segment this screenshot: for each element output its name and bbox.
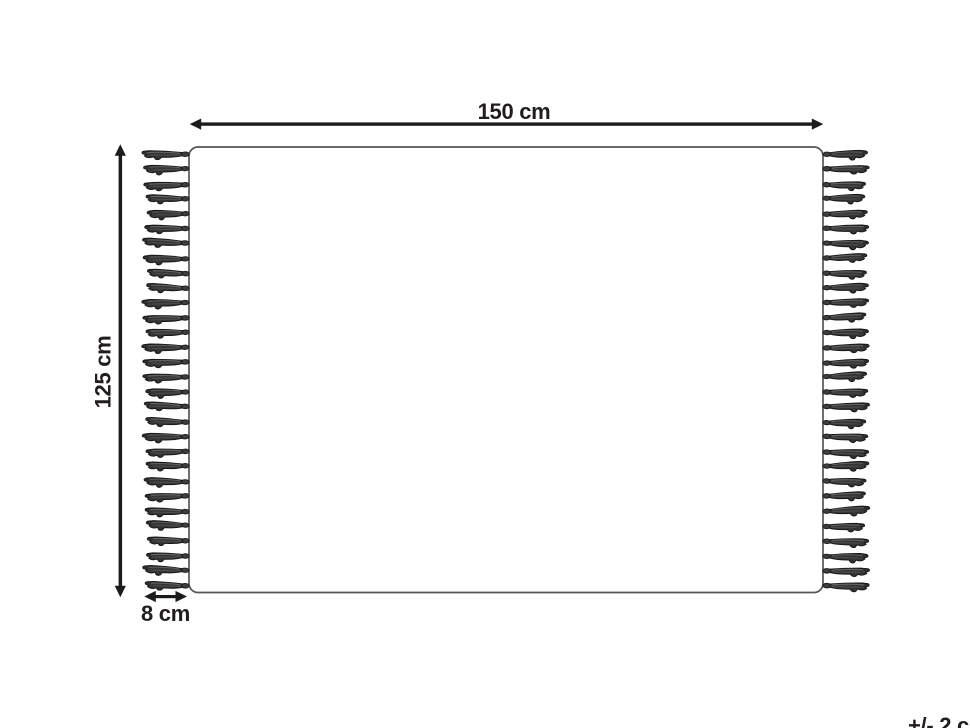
svg-text:8 cm: 8 cm <box>141 601 190 626</box>
svg-text:125 cm: 125 cm <box>90 336 115 409</box>
svg-text:150 cm: 150 cm <box>478 99 551 124</box>
svg-text:+/- 2 cm: +/- 2 cm <box>908 713 970 728</box>
